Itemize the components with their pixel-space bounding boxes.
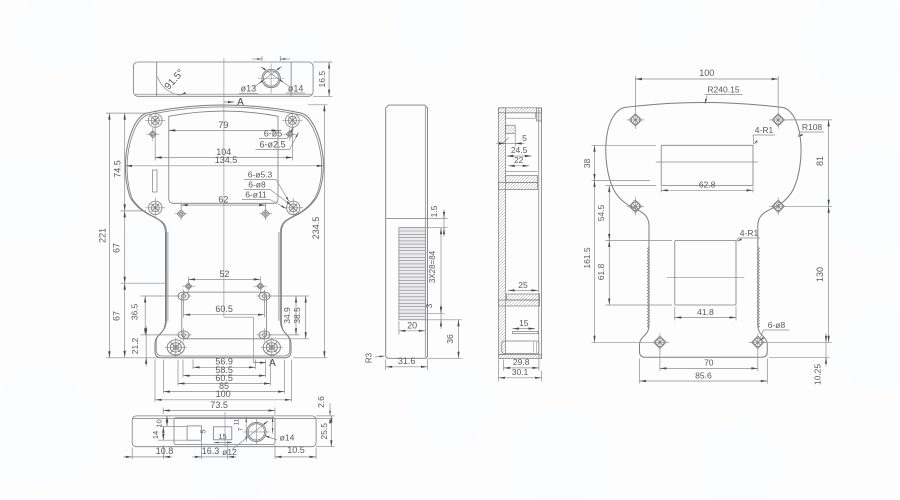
- svg-text:29.8: 29.8: [513, 357, 530, 367]
- svg-text:10.8: 10.8: [156, 446, 174, 456]
- svg-text:36.5: 36.5: [130, 303, 140, 320]
- svg-text:10.25: 10.25: [812, 364, 822, 386]
- svg-text:15: 15: [218, 432, 226, 441]
- svg-text:38.5: 38.5: [292, 307, 302, 324]
- svg-text:16.3: 16.3: [202, 446, 220, 456]
- svg-text:25.5: 25.5: [319, 423, 329, 440]
- svg-text:6-ø11: 6-ø11: [245, 190, 267, 200]
- svg-text:A: A: [237, 97, 244, 108]
- svg-text:ø14: ø14: [280, 432, 295, 442]
- svg-text:54.5: 54.5: [596, 204, 606, 221]
- svg-text:38: 38: [582, 159, 592, 169]
- svg-text:5: 5: [522, 133, 527, 143]
- svg-text:52: 52: [219, 269, 229, 279]
- svg-text:62: 62: [218, 195, 228, 205]
- svg-text:25: 25: [518, 280, 528, 290]
- svg-text:41.8: 41.8: [697, 307, 714, 317]
- svg-text:20: 20: [407, 320, 417, 330]
- svg-text:ø14: ø14: [288, 84, 304, 94]
- svg-text:ø13: ø13: [241, 84, 257, 94]
- svg-text:6-ø8: 6-ø8: [248, 180, 266, 190]
- svg-text:22: 22: [514, 155, 524, 165]
- svg-text:161.5: 161.5: [582, 247, 592, 269]
- svg-text:100: 100: [699, 68, 714, 78]
- svg-text:74.5: 74.5: [112, 160, 122, 178]
- svg-text:67: 67: [112, 243, 122, 253]
- svg-text:21.2: 21.2: [130, 337, 140, 354]
- svg-text:221: 221: [97, 228, 107, 243]
- svg-text:10.5: 10.5: [287, 445, 305, 455]
- svg-text:6-ø5.3: 6-ø5.3: [248, 170, 273, 180]
- svg-text:2.6: 2.6: [316, 396, 326, 408]
- svg-text:R108: R108: [802, 122, 823, 132]
- svg-text:67: 67: [112, 311, 122, 321]
- svg-text:81: 81: [815, 156, 825, 166]
- svg-text:6-ø2.5: 6-ø2.5: [259, 140, 285, 150]
- svg-text:5: 5: [199, 429, 208, 433]
- svg-text:85.6: 85.6: [695, 370, 712, 380]
- svg-text:34.9: 34.9: [282, 307, 292, 324]
- svg-text:30.1: 30.1: [512, 367, 529, 377]
- svg-text:16.5: 16.5: [317, 71, 327, 88]
- svg-text:134.5: 134.5: [215, 155, 238, 165]
- svg-text:234.5: 234.5: [311, 217, 321, 240]
- svg-text:1.5: 1.5: [429, 205, 439, 217]
- svg-text:4-R1: 4-R1: [755, 125, 774, 135]
- svg-text:6-ø5: 6-ø5: [264, 129, 283, 139]
- svg-text:79: 79: [218, 120, 228, 130]
- svg-text:62.8: 62.8: [699, 180, 716, 190]
- svg-text:R3: R3: [365, 352, 374, 363]
- svg-text:4-R1: 4-R1: [740, 228, 759, 238]
- svg-text:11: 11: [234, 418, 241, 425]
- svg-text:6-ø8: 6-ø8: [768, 320, 786, 330]
- svg-text:15: 15: [519, 318, 529, 328]
- svg-text:24.5: 24.5: [511, 145, 528, 155]
- svg-text:31.6: 31.6: [398, 356, 416, 366]
- svg-text:14: 14: [151, 431, 160, 439]
- svg-text:ø12: ø12: [222, 447, 237, 457]
- svg-text:R240.15: R240.15: [707, 85, 739, 95]
- svg-text:100: 100: [216, 389, 231, 399]
- svg-text:3X28=84: 3X28=84: [428, 250, 437, 283]
- svg-text:70: 70: [704, 358, 714, 368]
- svg-text:73.5: 73.5: [210, 400, 228, 410]
- svg-text:3: 3: [425, 303, 434, 308]
- svg-text:7: 7: [238, 427, 245, 431]
- svg-text:61.8: 61.8: [596, 263, 606, 280]
- svg-text:60.5: 60.5: [215, 304, 233, 314]
- svg-text:36: 36: [445, 334, 455, 344]
- svg-text:130: 130: [815, 267, 825, 282]
